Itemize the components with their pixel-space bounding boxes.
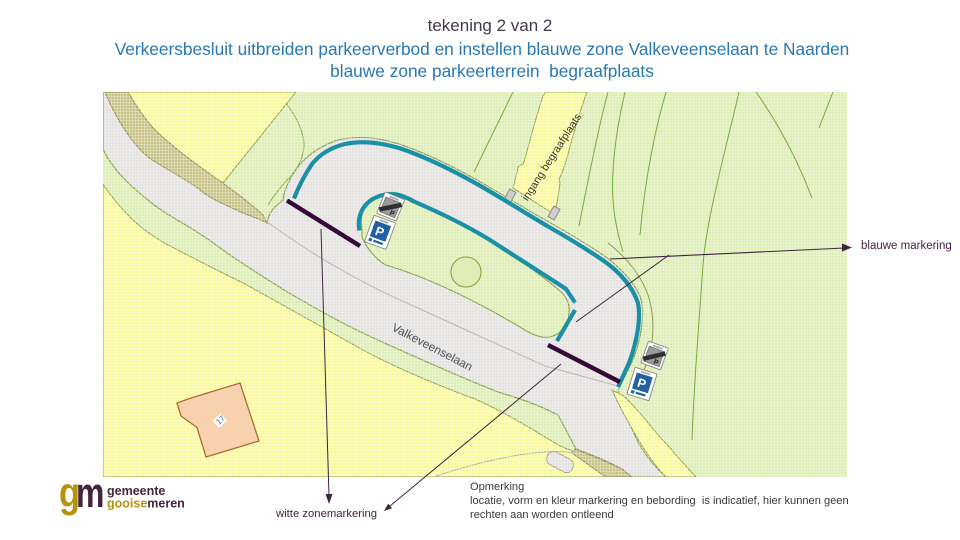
svg-text:gooisemeren: gooisemeren xyxy=(107,497,185,511)
svg-text:g: g xyxy=(59,470,80,517)
svg-text:m: m xyxy=(76,469,104,516)
